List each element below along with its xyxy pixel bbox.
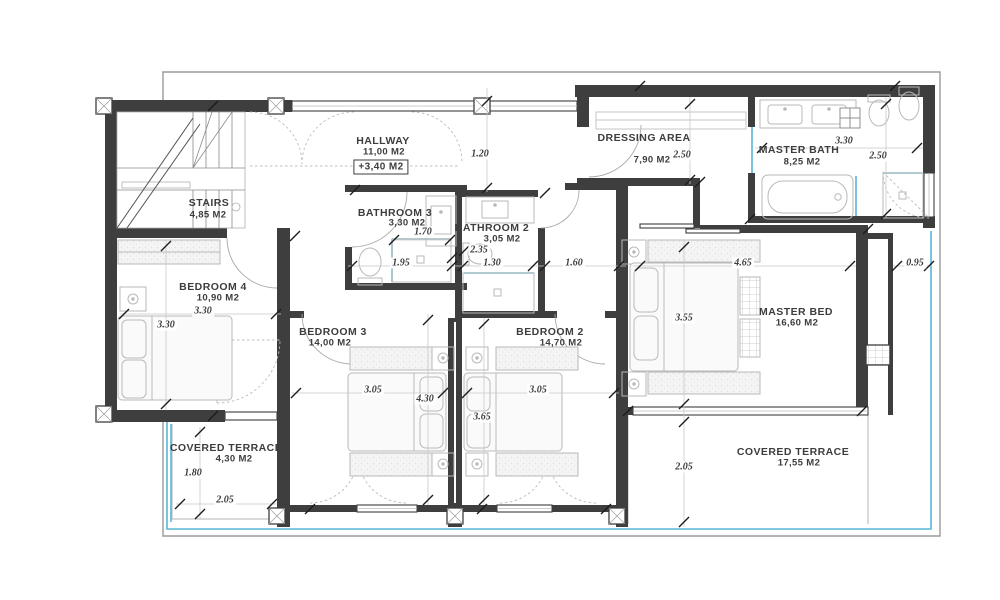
- room-label-bathroom2: BATHROOM 2: [455, 222, 529, 234]
- dimension-label: 1.80: [182, 468, 204, 479]
- room-label-master-bath: MASTER BATH: [759, 144, 840, 156]
- floor-plan-drawing: [0, 0, 1000, 600]
- room-label-bedroom3: BEDROOM 3: [299, 326, 367, 338]
- room-label-hallway: HALLWAY: [356, 135, 410, 147]
- floor-plan: STAIRS 4,85 M2 HALLWAY 11,00 M2 +3,40 M2…: [0, 0, 1000, 600]
- dimension-label: 3.55: [673, 313, 695, 324]
- room-label-master-bed: MASTER BED: [759, 306, 833, 318]
- dimension-label: 3.05: [527, 385, 549, 396]
- room-area-master-bed: 16,60 M2: [776, 318, 818, 329]
- dimension-label: 3.65: [471, 412, 493, 423]
- dimension-label: 3.05: [362, 385, 384, 396]
- hallway-extra-area-badge: +3,40 M2: [353, 160, 408, 175]
- dimension-label: 1.30: [481, 258, 503, 269]
- dimension-label: 1.70: [412, 227, 434, 238]
- room-area-dressing-area: 7,90 M2: [634, 155, 671, 166]
- dimension-label: 4.30: [414, 394, 436, 405]
- dimension-label: 0.95: [904, 258, 926, 269]
- room-area-bedroom3: 14,00 M2: [309, 338, 351, 349]
- room-label-stairs: STAIRS: [189, 197, 229, 209]
- room-label-covered-terrace-small: COVERED TERRACE: [170, 442, 282, 454]
- room-area-stairs: 4,85 M2: [190, 210, 227, 221]
- room-area-bedroom2: 14,70 M2: [540, 338, 582, 349]
- dimension-label: 3.30: [155, 320, 177, 331]
- room-label-covered-terrace-large: COVERED TERRACE: [737, 446, 849, 458]
- dressing-wardrobe: [596, 112, 746, 129]
- dimension-label: 2.35: [468, 245, 490, 256]
- dimension-label: 2.50: [867, 151, 889, 162]
- dimension-label: 2.50: [671, 150, 693, 161]
- dimension-label: 3.30: [833, 136, 855, 147]
- dimension-label: 3.30: [192, 306, 214, 317]
- dimension-label: 1.95: [390, 258, 412, 269]
- room-area-covered-terrace-small: 4,30 M2: [216, 454, 253, 465]
- dimension-label: 4.65: [732, 258, 754, 269]
- hatched-column: [866, 345, 890, 365]
- dimension-label: 2.05: [673, 462, 695, 473]
- dimension-label: 1.60: [563, 258, 585, 269]
- room-area-covered-terrace-large: 17,55 M2: [778, 458, 820, 469]
- room-label-bedroom2: BEDROOM 2: [516, 326, 584, 338]
- dimension-label: 2.05: [214, 495, 236, 506]
- room-area-bathroom2: 3,05 M2: [484, 234, 521, 245]
- room-area-bedroom4: 10,90 M2: [197, 293, 239, 304]
- room-label-bedroom4: BEDROOM 4: [179, 281, 247, 293]
- room-area-hallway: 11,00 M2: [363, 147, 405, 158]
- room-label-dressing-area: DRESSING AREA: [598, 132, 691, 144]
- bedroom3-furniture: [348, 347, 454, 476]
- room-area-master-bath: 8,25 M2: [784, 157, 821, 168]
- dimension-label: 1.20: [469, 149, 491, 160]
